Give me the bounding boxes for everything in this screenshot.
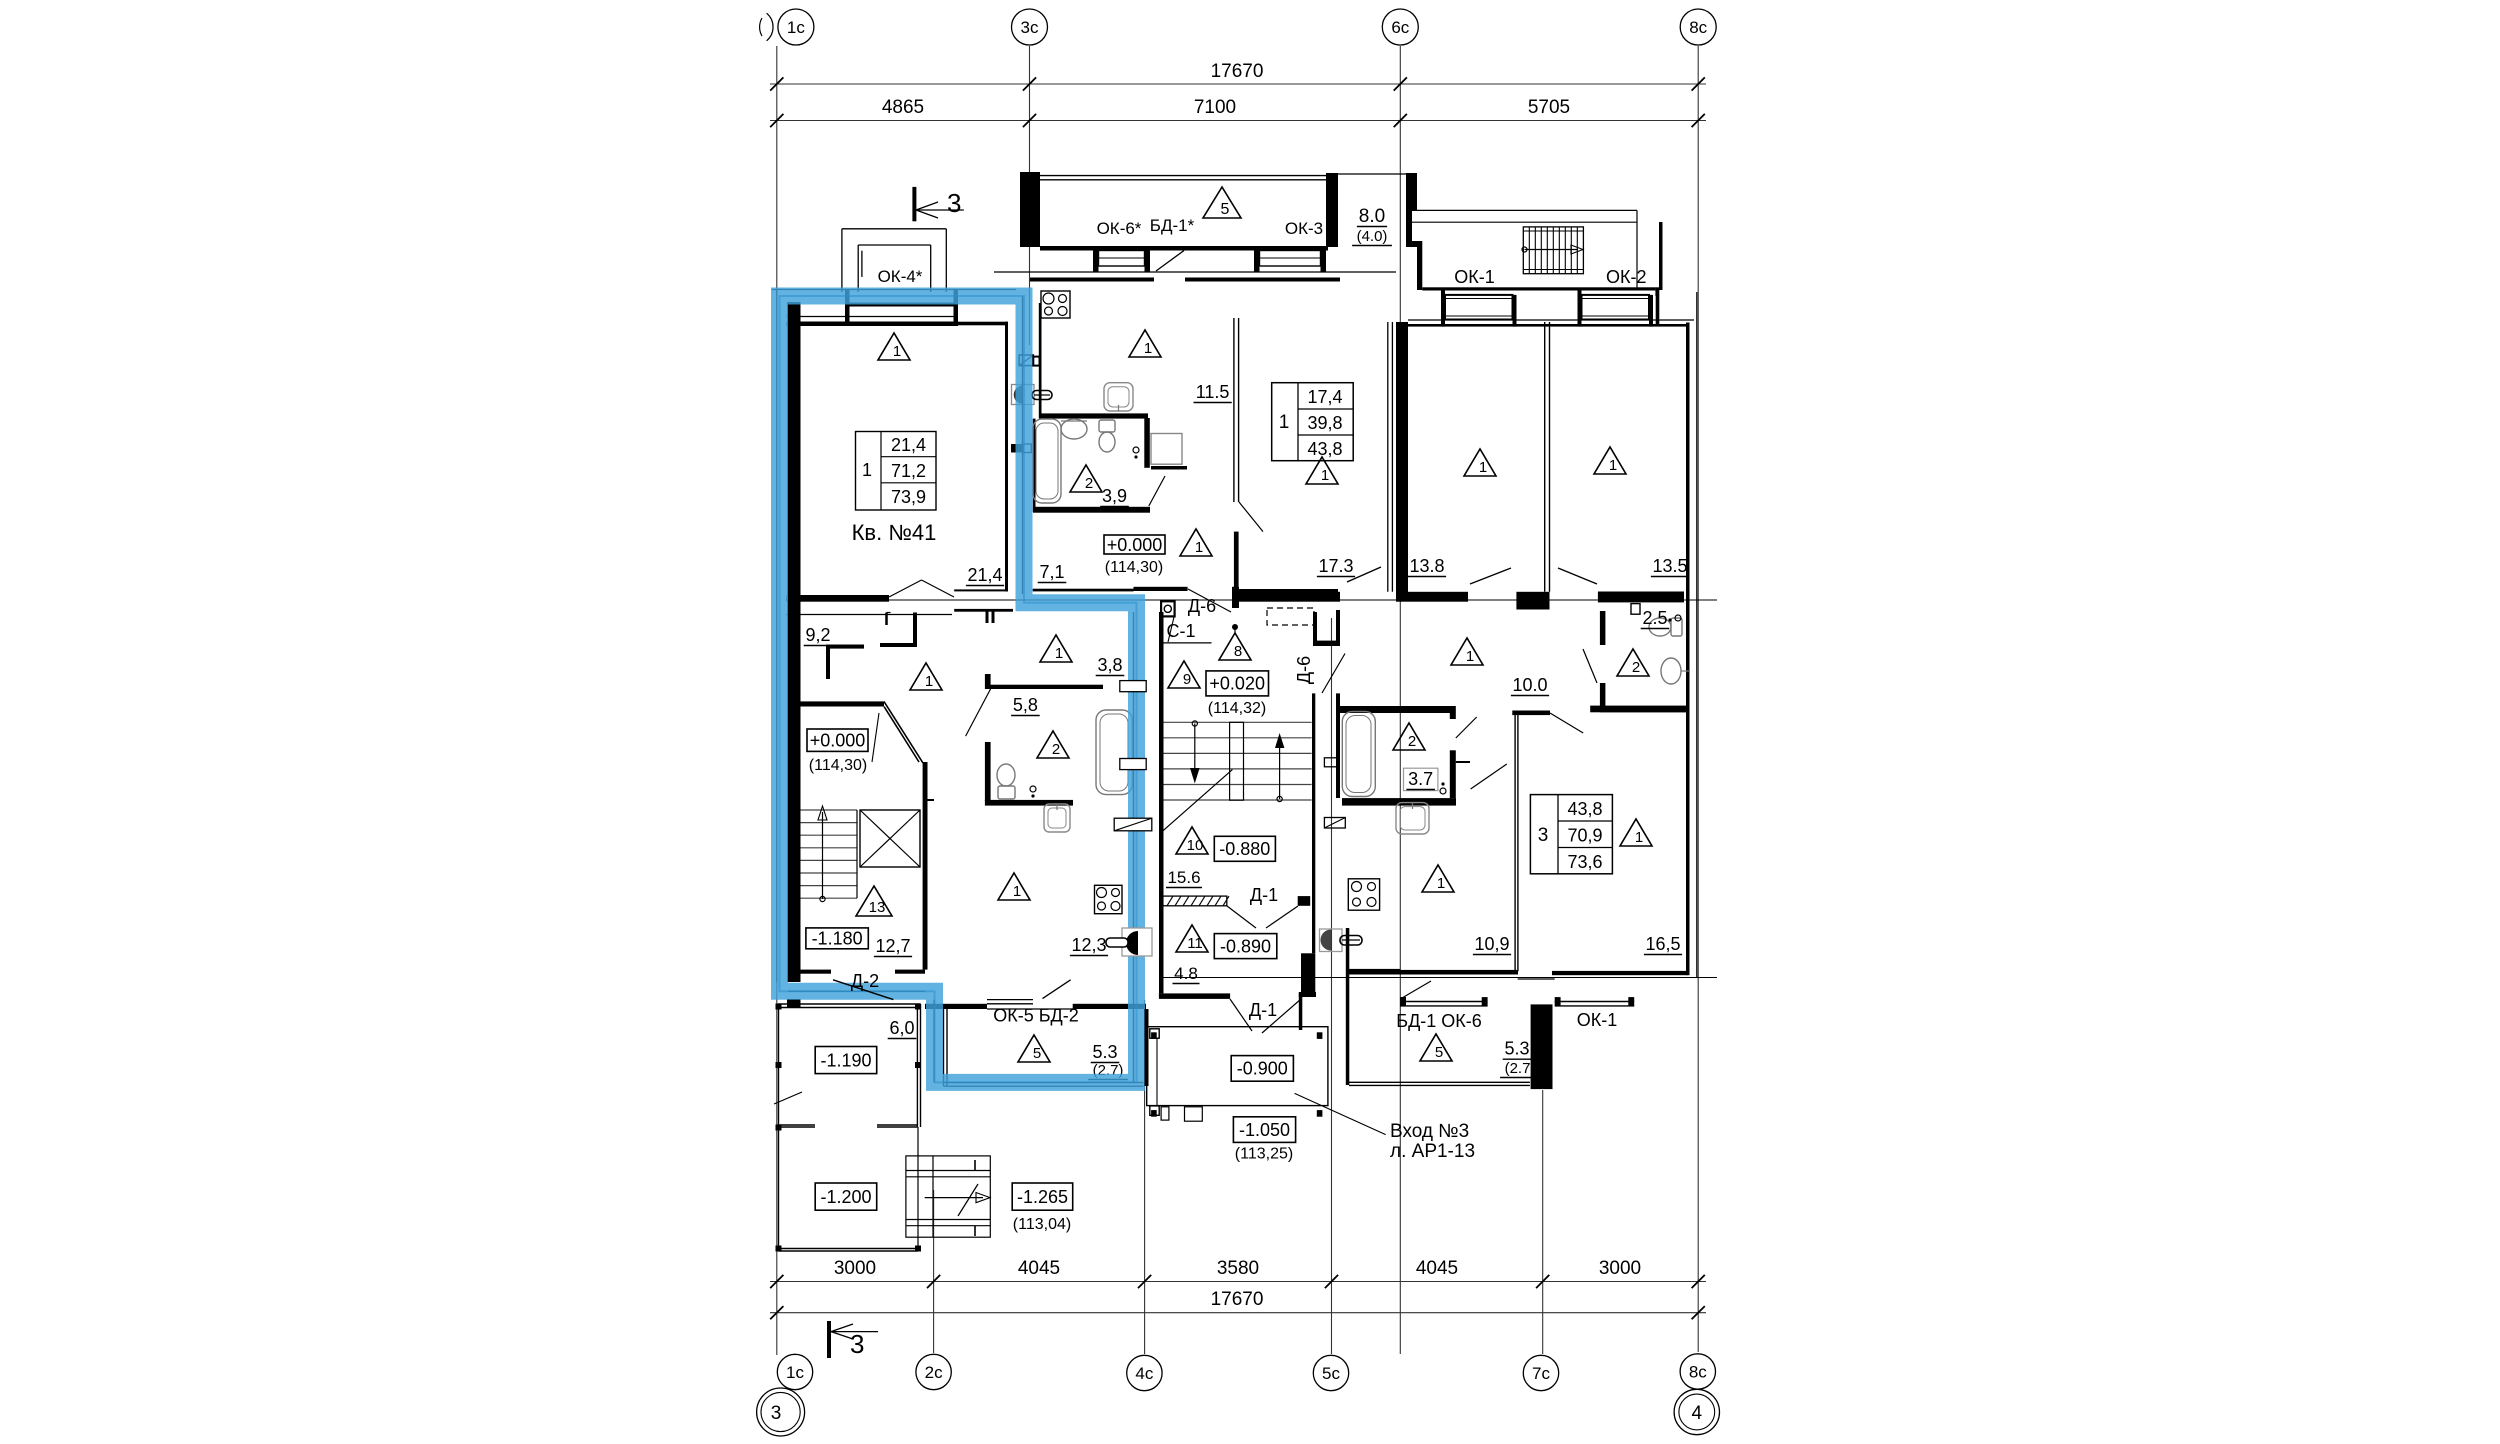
svg-text:3c: 3c: [1021, 18, 1039, 37]
svg-text:+0.000: +0.000: [1107, 535, 1163, 555]
svg-text:2: 2: [1085, 475, 1093, 492]
svg-text:1: 1: [1321, 467, 1329, 484]
svg-text:5c: 5c: [1322, 1364, 1340, 1383]
svg-text:15.6: 15.6: [1167, 868, 1200, 887]
svg-text:21,4: 21,4: [891, 435, 926, 455]
svg-text:5705: 5705: [1528, 97, 1570, 118]
svg-text:-1.200: -1.200: [820, 1187, 871, 1207]
svg-text:4: 4: [1692, 1403, 1703, 1424]
svg-text:ОК-2: ОК-2: [1606, 267, 1647, 287]
svg-text:ОК-4*: ОК-4*: [878, 267, 923, 286]
svg-text:16,5: 16,5: [1645, 934, 1680, 954]
svg-text:1c: 1c: [786, 1363, 804, 1382]
svg-text:Д-2: Д-2: [851, 971, 879, 991]
svg-text:11: 11: [1187, 935, 1203, 952]
svg-text:8c: 8c: [1689, 1363, 1707, 1382]
svg-text:ОК-6*: ОК-6*: [1097, 219, 1142, 238]
svg-text:(114,32): (114,32): [1208, 700, 1266, 717]
svg-text:1: 1: [925, 673, 933, 690]
svg-text:13: 13: [869, 899, 886, 916]
svg-text:8.0: 8.0: [1359, 206, 1385, 227]
svg-text:3: 3: [771, 1403, 782, 1424]
svg-text:3: 3: [947, 188, 961, 218]
svg-text:1: 1: [893, 343, 901, 360]
svg-text:6,0: 6,0: [889, 1018, 914, 1038]
svg-text:5: 5: [1033, 1045, 1041, 1062]
svg-text:5,8: 5,8: [1013, 695, 1038, 715]
svg-text:3000: 3000: [1599, 1258, 1641, 1279]
svg-text:1: 1: [1437, 875, 1445, 892]
svg-text:4865: 4865: [882, 97, 924, 118]
svg-text:70,9: 70,9: [1567, 826, 1602, 846]
svg-text:(114,30): (114,30): [1105, 559, 1163, 576]
svg-text:7100: 7100: [1194, 97, 1236, 118]
svg-text:2: 2: [1632, 659, 1640, 676]
svg-text:43,8: 43,8: [1567, 799, 1602, 819]
svg-text:-1.050: -1.050: [1239, 1120, 1290, 1140]
svg-text:71,2: 71,2: [891, 461, 926, 481]
svg-text:1: 1: [1635, 829, 1643, 846]
svg-text:5: 5: [1221, 201, 1230, 218]
svg-text:4.8: 4.8: [1174, 964, 1198, 983]
svg-text:43,8: 43,8: [1307, 439, 1342, 459]
svg-text:2c: 2c: [925, 1363, 943, 1382]
svg-text:1: 1: [1144, 340, 1152, 357]
svg-text:4045: 4045: [1416, 1258, 1458, 1279]
svg-text:13.5: 13.5: [1652, 556, 1687, 576]
svg-text:5.3: 5.3: [1092, 1042, 1117, 1062]
svg-text:С-1: С-1: [1166, 621, 1195, 641]
svg-text:1: 1: [1609, 457, 1617, 474]
svg-text:л. АР1-13: л. АР1-13: [1390, 1141, 1475, 1162]
svg-text:ОК-3: ОК-3: [1285, 219, 1323, 238]
svg-text:6c: 6c: [1391, 18, 1409, 37]
svg-text:Д-6: Д-6: [1294, 656, 1314, 684]
svg-text:2.5: 2.5: [1642, 608, 1667, 628]
svg-text:10.0: 10.0: [1512, 675, 1547, 695]
svg-text:3: 3: [1538, 825, 1549, 846]
svg-text:17670: 17670: [1211, 1289, 1264, 1310]
svg-text:-1.190: -1.190: [820, 1050, 871, 1070]
svg-text:Кв. №41: Кв. №41: [852, 520, 937, 545]
svg-text:3,8: 3,8: [1097, 655, 1122, 675]
svg-text:8c: 8c: [1689, 18, 1707, 37]
svg-text:Вход №3: Вход №3: [1390, 1121, 1469, 1142]
svg-text:1: 1: [1195, 539, 1203, 556]
svg-text:Д-6: Д-6: [1188, 596, 1216, 616]
svg-text:3000: 3000: [834, 1258, 876, 1279]
svg-text:7c: 7c: [1532, 1364, 1550, 1383]
svg-text:3: 3: [850, 1329, 864, 1359]
svg-text:1: 1: [1055, 645, 1063, 662]
svg-text:7,1: 7,1: [1039, 562, 1064, 582]
svg-text:ОК-1: ОК-1: [1454, 267, 1495, 287]
svg-text:(114,30): (114,30): [809, 757, 867, 774]
svg-text:17670: 17670: [1211, 61, 1264, 82]
svg-text:1c: 1c: [787, 18, 805, 37]
svg-text:-0.890: -0.890: [1220, 936, 1271, 956]
svg-text:9,2: 9,2: [805, 625, 830, 645]
svg-text:10,9: 10,9: [1474, 934, 1509, 954]
svg-text:(4.0): (4.0): [1357, 228, 1388, 245]
svg-text:12,3: 12,3: [1071, 935, 1106, 955]
svg-text:8: 8: [1234, 643, 1242, 660]
svg-text:9: 9: [1183, 671, 1191, 688]
svg-text:5.3: 5.3: [1504, 1039, 1529, 1059]
svg-text:73,6: 73,6: [1567, 852, 1602, 872]
svg-text:2: 2: [1052, 741, 1060, 758]
svg-text:-1.180: -1.180: [812, 929, 863, 949]
svg-text:1: 1: [1279, 412, 1290, 433]
svg-text:-0.900: -0.900: [1237, 1059, 1288, 1079]
svg-text:1: 1: [862, 460, 872, 480]
svg-text:+0.020: +0.020: [1209, 674, 1265, 694]
svg-text:5: 5: [1435, 1044, 1443, 1061]
svg-text:2: 2: [1408, 733, 1416, 750]
svg-text:1: 1: [1466, 648, 1474, 665]
svg-text:1: 1: [1013, 883, 1021, 900]
svg-text:ОК-1: ОК-1: [1577, 1010, 1618, 1030]
svg-text:1: 1: [1479, 459, 1487, 476]
svg-text:-1.265: -1.265: [1017, 1187, 1068, 1207]
svg-text:3.7: 3.7: [1408, 769, 1433, 789]
svg-text:73,9: 73,9: [891, 487, 926, 507]
svg-text:39,8: 39,8: [1307, 413, 1342, 433]
svg-text:17,4: 17,4: [1307, 387, 1342, 407]
svg-text:3580: 3580: [1217, 1258, 1259, 1279]
svg-text:ОК-5 БД-2: ОК-5 БД-2: [993, 1006, 1079, 1026]
svg-text:(113,04): (113,04): [1013, 1216, 1071, 1233]
svg-text:БД-1*: БД-1*: [1150, 216, 1195, 235]
svg-text:17.3: 17.3: [1318, 556, 1353, 576]
svg-text:13.8: 13.8: [1409, 556, 1444, 576]
svg-text:+0.000: +0.000: [810, 731, 866, 751]
svg-text:Д-1: Д-1: [1250, 885, 1278, 905]
svg-text:Д-1: Д-1: [1249, 1000, 1277, 1020]
svg-text:4c: 4c: [1135, 1364, 1153, 1383]
svg-text:БД-1 ОК-6: БД-1 ОК-6: [1396, 1011, 1482, 1031]
svg-text:(113,25): (113,25): [1235, 1146, 1293, 1163]
svg-text:4045: 4045: [1018, 1258, 1060, 1279]
svg-text:12,7: 12,7: [875, 936, 910, 956]
svg-text:3,9: 3,9: [1102, 486, 1127, 506]
svg-text:10: 10: [1187, 837, 1204, 854]
svg-text:21,4: 21,4: [967, 565, 1002, 585]
svg-text:-0.880: -0.880: [1219, 839, 1270, 859]
svg-text:11.5: 11.5: [1196, 382, 1230, 402]
